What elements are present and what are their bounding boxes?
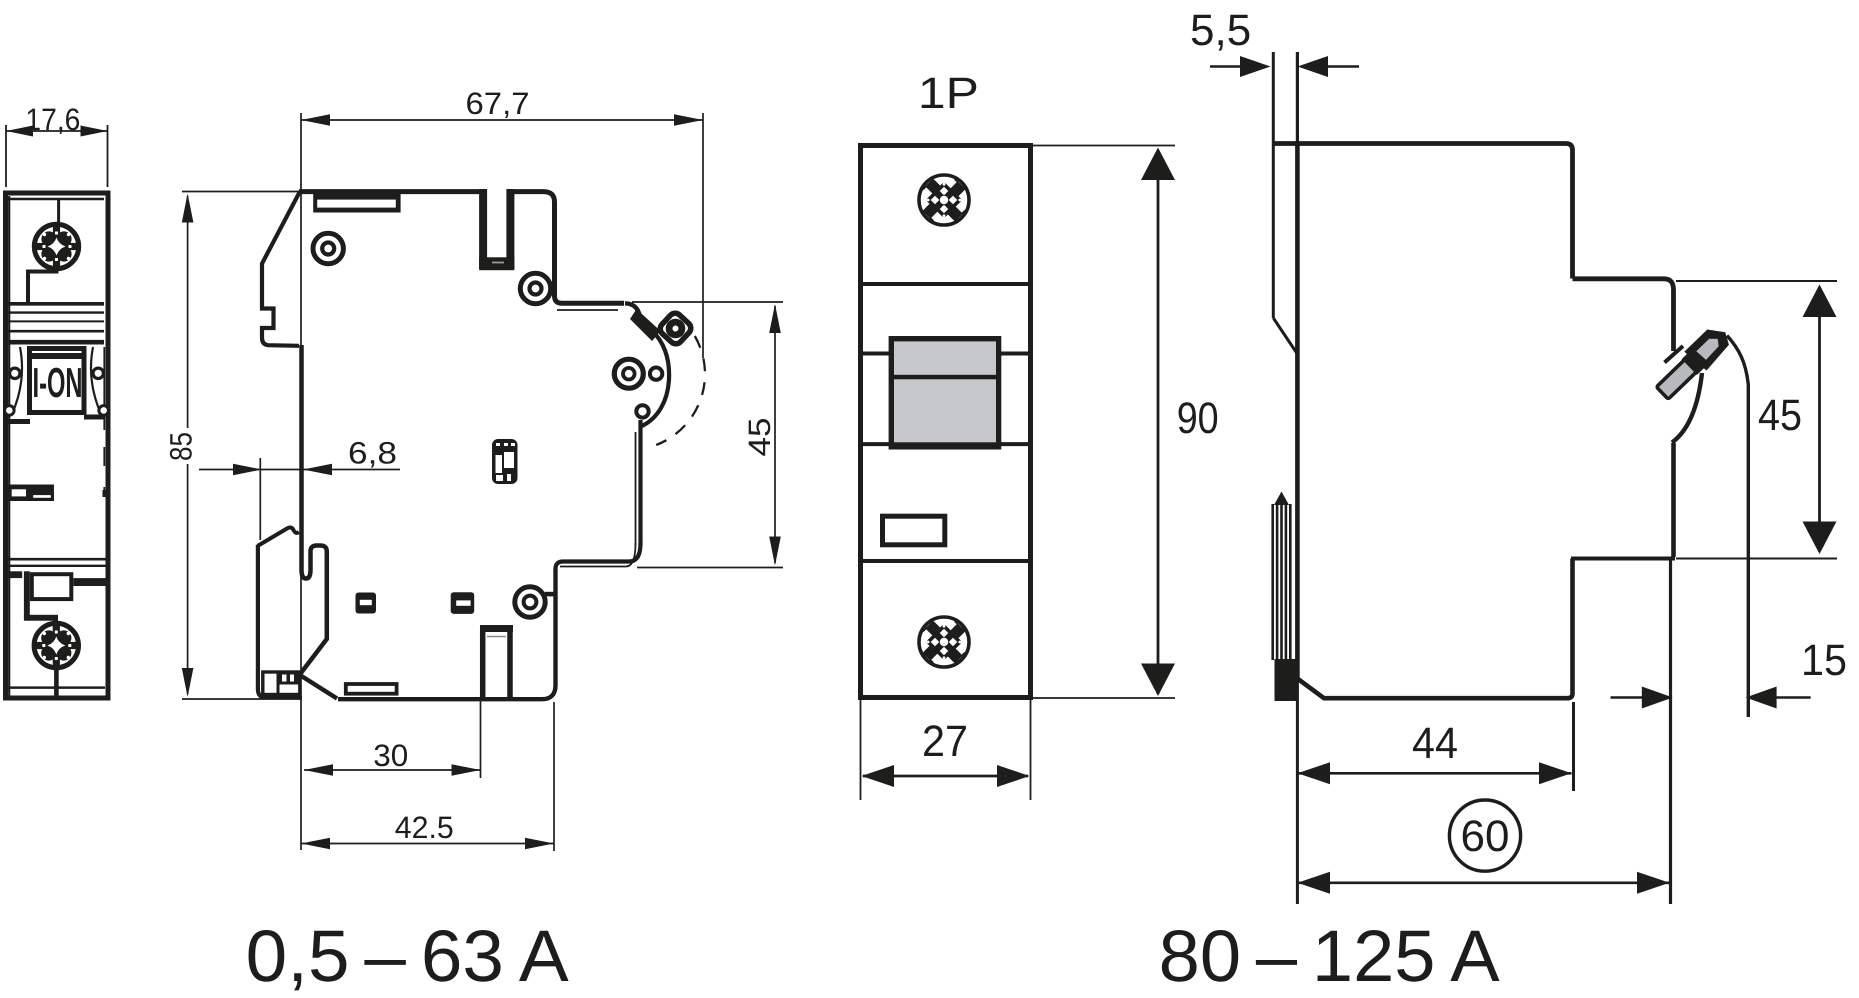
svg-text:5,5: 5,5 — [1190, 6, 1251, 55]
svg-text:1P: 1P — [918, 69, 979, 118]
svg-text:90: 90 — [1177, 394, 1219, 443]
svg-text:60: 60 — [1461, 812, 1510, 861]
svg-text:85: 85 — [164, 432, 199, 461]
svg-text:80 – 125 A: 80 – 125 A — [1159, 916, 1500, 997]
svg-text:44: 44 — [1412, 719, 1458, 768]
svg-text:45: 45 — [742, 418, 777, 457]
svg-text:27: 27 — [922, 717, 968, 766]
svg-text:45: 45 — [1758, 391, 1802, 440]
svg-text:42.5: 42.5 — [395, 810, 454, 845]
svg-text:I-ON: I-ON — [33, 359, 83, 406]
svg-text:0,5 – 63 A: 0,5 – 63 A — [246, 916, 569, 997]
svg-text:15: 15 — [1801, 636, 1847, 685]
svg-text:17,6: 17,6 — [25, 102, 80, 137]
svg-text:30: 30 — [373, 738, 408, 773]
svg-text:6,8: 6,8 — [348, 436, 397, 471]
svg-text:67,7: 67,7 — [466, 86, 530, 121]
